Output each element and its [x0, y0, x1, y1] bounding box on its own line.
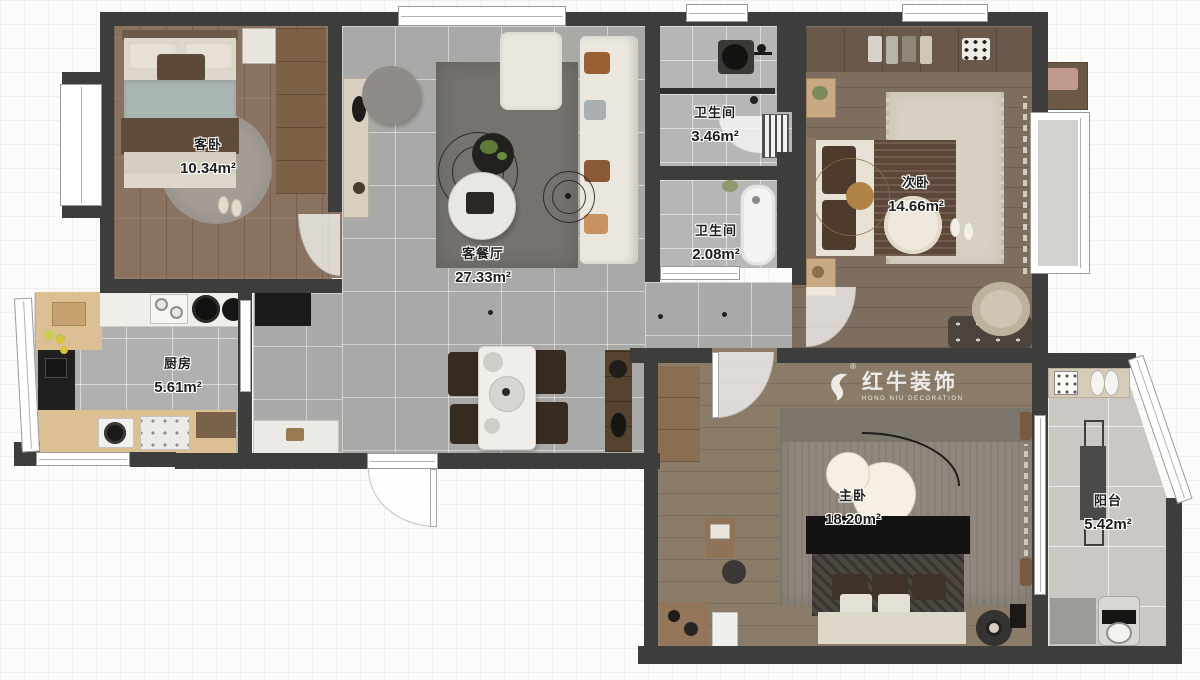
wall-bed2-west — [792, 12, 806, 285]
window-master-balcony — [1034, 415, 1046, 595]
room-name: 客餐厅 — [455, 243, 511, 262]
pillow — [912, 574, 946, 600]
lemon — [60, 346, 68, 354]
brand-watermark: ® 红牛装饰 HONG NIU DECORATION — [822, 370, 964, 404]
room-name: 次卧 — [888, 172, 944, 191]
room-label-master-bedroom: 主卧 18.20m² — [825, 485, 881, 528]
pillow — [840, 594, 872, 614]
wall-south-a — [175, 453, 367, 469]
lounge-chair — [362, 66, 420, 124]
wall-south-b — [438, 453, 660, 469]
window-bath-north — [686, 4, 748, 22]
burner — [170, 306, 183, 319]
table-tray — [466, 192, 494, 214]
decor-box — [286, 428, 304, 441]
room-area: 10.34m² — [180, 160, 236, 177]
storage-box — [962, 38, 990, 60]
plant — [497, 152, 507, 160]
slipper — [950, 218, 961, 237]
camera-item — [684, 622, 698, 636]
cooking-pot — [192, 295, 220, 323]
faucet-handle — [757, 44, 766, 53]
sofa-pillow — [584, 52, 610, 74]
floor-bed2-doorway — [792, 285, 806, 348]
slipper — [218, 196, 229, 214]
floorplan-canvas: 客卧 10.34m² 客餐厅 27.33m² 卫生间 3.46m² 卫生间 2.… — [0, 0, 1200, 680]
wall-guest-south — [100, 279, 342, 293]
shower-drain — [750, 96, 758, 104]
wall-bath-west — [645, 12, 660, 282]
chaise-lounge — [500, 32, 562, 110]
ceiling-light-symbol — [812, 158, 890, 236]
corner-desk — [660, 602, 708, 646]
room-name: 客卧 — [180, 134, 236, 153]
white-drawer-unit — [712, 612, 738, 648]
wall-bed2-east-a — [1032, 12, 1048, 120]
burner — [155, 298, 168, 311]
room-area: 18.20m² — [825, 511, 881, 528]
kettle — [610, 412, 627, 438]
accent-chair — [972, 282, 1030, 336]
bottle — [1104, 370, 1119, 396]
pillow — [878, 594, 910, 614]
fridge — [255, 292, 311, 326]
sofa-pillow — [584, 214, 608, 234]
hanging-clothes — [886, 36, 898, 64]
room-label-guest-bedroom: 客卧 10.34m² — [180, 134, 236, 177]
room-area: 14.66m² — [888, 198, 944, 215]
washer-door — [1106, 622, 1132, 644]
floor-dot — [658, 314, 663, 319]
fan-center — [565, 193, 571, 199]
wall-kitchen-south — [130, 452, 176, 467]
plant-table — [472, 133, 514, 175]
device — [1010, 604, 1026, 628]
wall-bath-divider — [650, 166, 792, 180]
books — [710, 524, 730, 539]
entry-door-arc — [368, 469, 436, 527]
bay-window-sill — [1038, 120, 1078, 266]
sofa-pillow — [584, 100, 606, 120]
room-name: 主卧 — [825, 485, 881, 504]
decor-item — [812, 266, 824, 278]
guest-wardrobe — [276, 28, 326, 194]
balcony-mat — [1050, 598, 1096, 644]
wall-south-master — [638, 646, 1182, 664]
room-name: 卫生间 — [692, 220, 740, 239]
room-name: 卫生间 — [691, 102, 739, 121]
tub-faucet — [752, 196, 760, 204]
curtain — [1024, 444, 1028, 556]
master-door-leaf — [712, 352, 719, 418]
plant — [722, 180, 738, 192]
guest-cabinet — [242, 28, 276, 64]
brand-name-en: HONG NIU DECORATION — [862, 396, 964, 402]
desk-chair — [722, 560, 746, 584]
room-label-kitchen: 厨房 5.61m² — [154, 353, 202, 396]
wall-mid-b — [777, 348, 1048, 363]
duvet — [124, 80, 236, 122]
plate — [483, 352, 503, 372]
camera-item — [668, 610, 680, 622]
wall-guest-east — [328, 12, 342, 212]
wall-bed2-east-b — [1032, 268, 1048, 362]
hanging-clothes — [868, 36, 882, 62]
bed2-wardrobe — [806, 28, 1032, 72]
room-area: 2.08m² — [692, 246, 740, 263]
wall-balcony-north — [1048, 353, 1136, 368]
coffee-machine — [609, 360, 627, 378]
curtain-panel — [1020, 412, 1032, 440]
registered-mark: ® — [850, 362, 856, 371]
bathroom-small-doorway — [660, 266, 740, 280]
room-label-second-bedroom: 次卧 14.66m² — [888, 172, 944, 215]
plate — [484, 418, 500, 434]
hongniu-bull-logo-icon — [822, 370, 856, 404]
window-kitchen-south — [36, 452, 130, 466]
shower-halfwall — [648, 88, 775, 94]
bottle — [1090, 370, 1105, 396]
hanging-clothes — [920, 36, 932, 64]
kitchen-sink-2 — [140, 416, 190, 450]
lemon — [44, 330, 54, 340]
room-area: 3.46m² — [691, 128, 739, 145]
towel-basket — [1054, 371, 1078, 395]
bay-window-glass — [1080, 118, 1081, 268]
room-label-bathroom-main: 卫生间 3.46m² — [691, 102, 739, 145]
floor-dot — [488, 310, 493, 315]
room-name: 阳台 — [1084, 490, 1132, 509]
room-area: 5.61m² — [154, 379, 202, 396]
fan-center — [989, 623, 999, 633]
entry-door-leaf — [430, 469, 437, 527]
room-area: 5.42m² — [1084, 516, 1132, 533]
brand-name-cn: 红牛装饰 — [862, 372, 964, 393]
entry-door-frame — [367, 453, 438, 469]
wall-balcony-east — [1166, 498, 1182, 650]
decor-item — [353, 182, 365, 194]
wall-mid-a — [630, 348, 712, 363]
wall-master-west — [644, 348, 658, 658]
slipper — [963, 222, 974, 241]
wall-bath-east-b — [777, 152, 792, 268]
kitchen-sliding-door — [240, 300, 251, 392]
window-living-north — [398, 6, 566, 26]
wall-west-guest — [100, 12, 114, 293]
room-area: 27.33m² — [455, 269, 511, 286]
plant — [812, 86, 828, 100]
accent-pillow — [157, 54, 205, 82]
kitchen-sink — [45, 358, 67, 378]
brand-text: 红牛装饰 HONG NIU DECORATION — [862, 372, 964, 402]
wall-bath-east-a — [777, 12, 792, 112]
cutting-board — [52, 302, 86, 326]
drying-rack-end — [1084, 420, 1104, 448]
teapot — [502, 388, 510, 396]
room-label-bathroom-small: 卫生间 2.08m² — [692, 220, 740, 263]
floor-hallway — [645, 282, 792, 348]
window-guest-west — [60, 84, 102, 206]
hanging-clothes — [902, 36, 916, 62]
room-label-living-dining: 客餐厅 27.33m² — [455, 243, 511, 286]
lemon — [56, 336, 64, 344]
burner-pan — [104, 422, 126, 444]
curtain — [1023, 96, 1027, 274]
curtain-panel — [1020, 558, 1032, 586]
counter-wood-dark — [196, 412, 236, 438]
master-wardrobe — [652, 366, 700, 462]
bathroom-sink — [722, 44, 748, 70]
window-bed2-north — [902, 4, 988, 22]
master-mattress-edge — [818, 612, 966, 644]
wall-window-cap — [62, 204, 102, 218]
plant — [480, 140, 498, 154]
floor-dot — [722, 312, 727, 317]
room-name: 厨房 — [154, 353, 202, 372]
slipper — [231, 199, 242, 217]
room-label-balcony: 阳台 5.42m² — [1084, 490, 1132, 533]
